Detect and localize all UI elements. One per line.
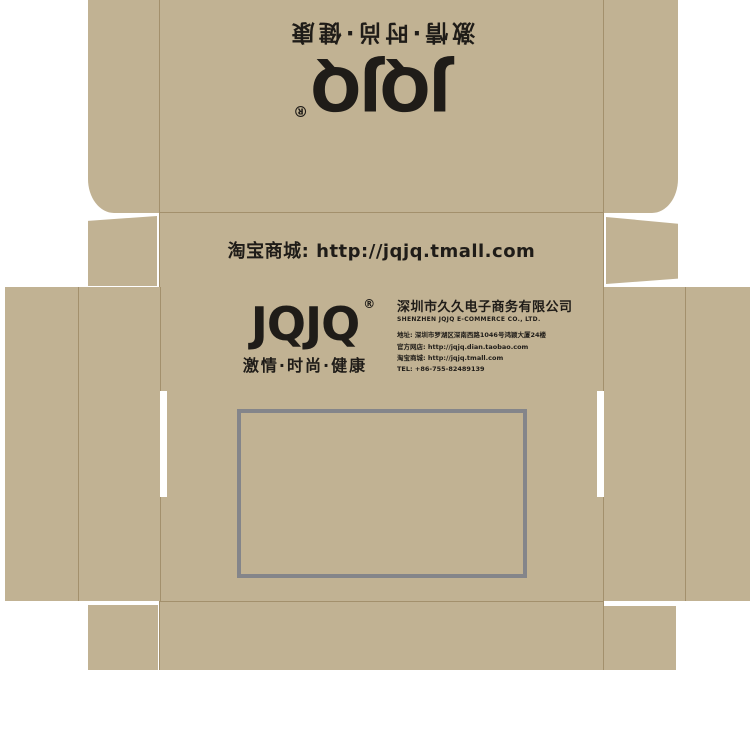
dust-flap-bottom-left bbox=[88, 605, 158, 670]
tmall-url-text: 淘宝商城: http://jqjq.tmall.com bbox=[228, 237, 536, 263]
main-logo-text: JQJQ bbox=[251, 297, 359, 351]
lid-logo-text: JQJQ bbox=[312, 53, 451, 123]
main-registered-mark: ® bbox=[363, 298, 374, 310]
lid-tagline: 激情·时尚·健康 bbox=[160, 18, 603, 52]
company-name-cn: 深圳市久久电子商务有限公司 bbox=[397, 301, 573, 315]
lid-brand-block-rotated: JQJQ ® 激情·时尚·健康 bbox=[160, 18, 603, 118]
company-info-block: 深圳市久久电子商务有限公司 SHENZHEN JQJQ E-COMMERCE C… bbox=[397, 301, 573, 375]
main-brand-block: JQJQ ® 激情·时尚·健康 bbox=[205, 301, 405, 376]
bottom-main-flap bbox=[159, 601, 604, 670]
fold-line-left-glue bbox=[78, 287, 79, 601]
company-tel: TEL: +86-755-82489139 bbox=[397, 364, 573, 375]
main-tagline: 激情·时尚·健康 bbox=[205, 352, 405, 376]
company-official-store: 官方网店: http://jqjq.dian.taobao.com bbox=[397, 342, 573, 353]
lid-registered-mark: ® bbox=[295, 103, 308, 118]
die-cut-window-outline bbox=[237, 409, 527, 578]
dust-flap-top-right bbox=[606, 217, 678, 284]
lid-panel: JQJQ ® 激情·时尚·健康 bbox=[159, 0, 604, 213]
company-address: 地址: 深圳市罗湖区深南西路1046号鸿颖大厦24楼 bbox=[397, 330, 573, 341]
tuck-slit-left bbox=[160, 391, 167, 497]
company-tmall-store: 淘宝商城: http://jqjq.tmall.com bbox=[397, 353, 573, 364]
tuck-slit-right bbox=[597, 391, 604, 497]
dust-flap-bottom-right bbox=[604, 606, 676, 670]
front-band-panel: 淘宝商城: http://jqjq.tmall.com bbox=[159, 213, 604, 287]
main-logo: JQJQ ® bbox=[251, 301, 359, 347]
company-name-en: SHENZHEN JQJQ E-COMMERCE CO., LTD. bbox=[397, 316, 573, 323]
company-details: 地址: 深圳市罗湖区深南西路1046号鸿颖大厦24楼 官方网店: http://… bbox=[397, 330, 573, 375]
fold-line-right-edge bbox=[685, 287, 686, 601]
lid-side-flap-left bbox=[88, 0, 159, 213]
main-body-row: JQJQ ® 激情·时尚·健康 深圳市久久电子商务有限公司 SHENZHEN J… bbox=[5, 287, 750, 601]
packaging-dieline-sheet: JQJQ ® 激情·时尚·健康 淘宝商城: http://jqjq.tmall.… bbox=[0, 0, 750, 735]
lid-logo: JQJQ ® bbox=[312, 58, 451, 118]
dust-flap-top-left bbox=[88, 216, 157, 286]
lid-side-flap-right bbox=[604, 0, 678, 213]
